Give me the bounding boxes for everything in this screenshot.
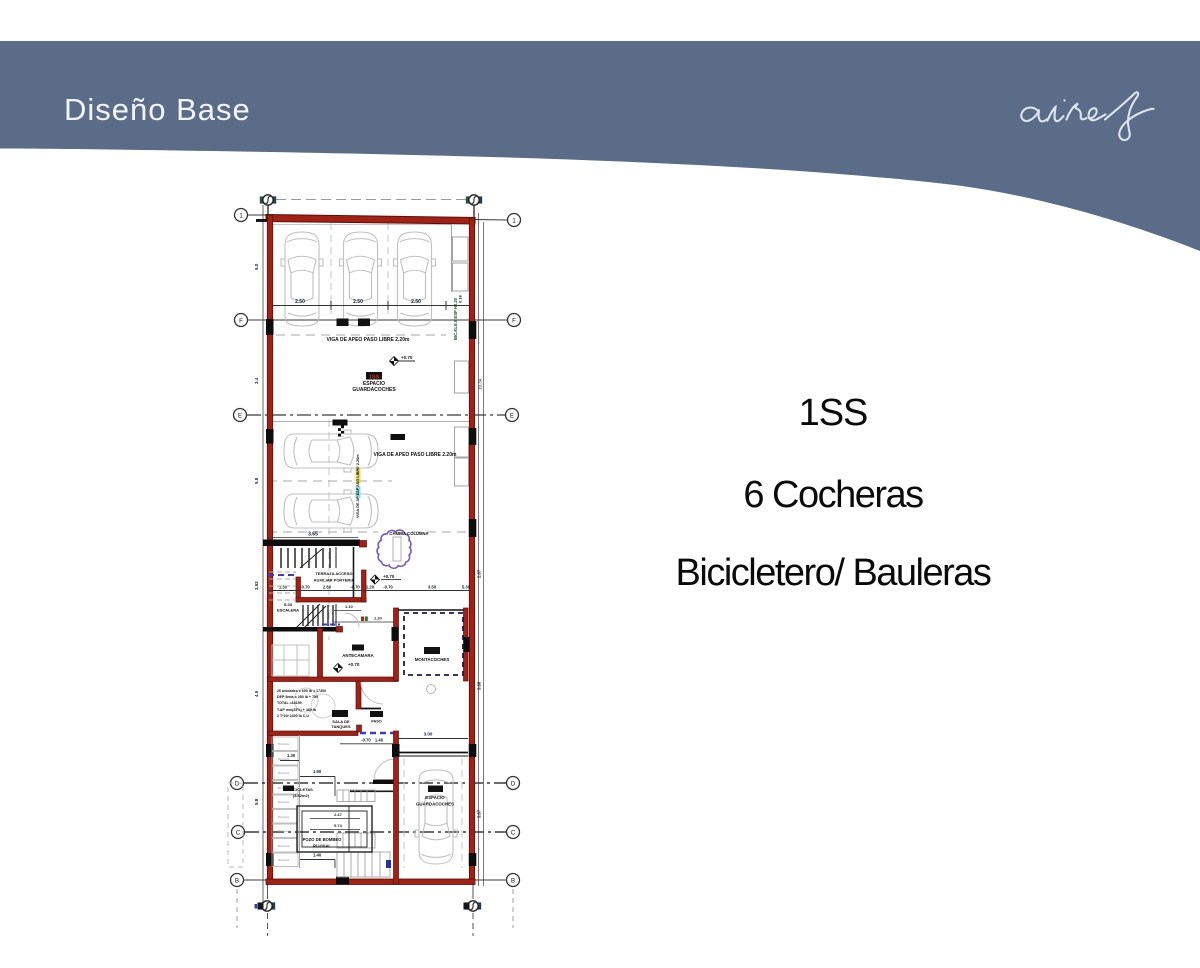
svg-text:VIGA DE APEO PASO LIBRE 2.20m: VIGA DE APEO PASO LIBRE 2.20m bbox=[374, 452, 457, 458]
svg-text:+0.70: +0.70 bbox=[383, 574, 395, 579]
svg-text:-0.70: -0.70 bbox=[361, 738, 371, 743]
svg-text:(3.52m2): (3.52m2) bbox=[293, 793, 310, 798]
svg-text:TANQUES: TANQUES bbox=[331, 724, 351, 729]
svg-text:3.52: 3.52 bbox=[254, 581, 259, 590]
svg-text:5.74: 5.74 bbox=[334, 823, 343, 828]
svg-text:B: B bbox=[235, 879, 239, 885]
svg-text:2 T*20/ 2400 lb C.U: 2 T*20/ 2400 lb C.U bbox=[277, 714, 309, 718]
svg-text:Bicicleta: Bicicleta bbox=[278, 742, 290, 746]
svg-text:1.10: 1.10 bbox=[345, 604, 354, 609]
svg-text:PASO: PASO bbox=[371, 720, 382, 724]
svg-text:BIC.KLE.5 ESP H2.20: BIC.KLE.5 ESP H2.20 bbox=[453, 297, 458, 340]
svg-text:Bicicleta: Bicicleta bbox=[278, 800, 290, 804]
svg-text:GUARDACOCHES: GUARDACOCHES bbox=[352, 387, 396, 393]
svg-text:2.50: 2.50 bbox=[353, 299, 363, 305]
svg-text:MONTACOCHES: MONTACOCHES bbox=[415, 657, 450, 662]
svg-text:Bicicleta: Bicicleta bbox=[278, 771, 290, 775]
svg-text:4.5: 4.5 bbox=[254, 690, 259, 697]
svg-text:Bicicleta: Bicicleta bbox=[278, 844, 290, 848]
svg-text:Bicicleta: Bicicleta bbox=[278, 858, 290, 862]
svg-text:E: E bbox=[238, 414, 242, 420]
svg-text:S.03: S.03 bbox=[284, 602, 293, 607]
svg-text:+0.70: +0.70 bbox=[348, 662, 360, 667]
svg-text:-0.70: -0.70 bbox=[350, 585, 360, 590]
svg-text:3.00: 3.00 bbox=[424, 732, 433, 737]
svg-text:Bicicleta: Bicicleta bbox=[278, 829, 290, 833]
svg-text:POZO DE BOMBEO: POZO DE BOMBEO bbox=[303, 837, 343, 842]
svg-text:AUXILIAR PORTERIA: AUXILIAR PORTERIA bbox=[314, 578, 355, 583]
svg-text:B: B bbox=[511, 879, 515, 885]
svg-text:3.50: 3.50 bbox=[428, 585, 437, 590]
svg-text:GUARDACOCHES: GUARDACOCHES bbox=[416, 802, 454, 807]
svg-text:VIGA DE APEO PASO LIBRE 2.20m: VIGA DE APEO PASO LIBRE 2.20m bbox=[327, 337, 410, 343]
svg-text:1.30: 1.30 bbox=[279, 585, 288, 590]
svg-text:F: F bbox=[239, 319, 243, 325]
svg-text:C: C bbox=[511, 831, 516, 837]
svg-text:VIGA DE AP ESP ASO LIBRE 2.20m: VIGA DE AP ESP ASO LIBRE 2.20m bbox=[356, 454, 360, 518]
svg-text:1.30: 1.30 bbox=[287, 753, 296, 758]
svg-text:5.8: 5.8 bbox=[254, 477, 259, 484]
svg-text:-0.70: -0.70 bbox=[383, 585, 393, 590]
svg-text:1SS: 1SS bbox=[369, 375, 380, 381]
svg-text:26 unidades x 600 lb = 17400: 26 unidades x 600 lb = 17400 bbox=[277, 689, 326, 693]
svg-text:CAMBIA COLUMNA: CAMBIA COLUMNA bbox=[389, 531, 428, 536]
svg-text:Bicicleta: Bicicleta bbox=[278, 815, 290, 819]
svg-text:3.65: 3.65 bbox=[308, 532, 318, 538]
svg-text:1.40: 1.40 bbox=[313, 853, 322, 858]
svg-text:-0.70: -0.70 bbox=[300, 585, 310, 590]
svg-text:10.34: 10.34 bbox=[478, 378, 483, 390]
svg-text:5.8: 5.8 bbox=[254, 798, 259, 805]
svg-text:2.50: 2.50 bbox=[411, 299, 421, 305]
svg-text:2.47: 2.47 bbox=[334, 812, 343, 817]
svg-text:1.20: 1.20 bbox=[366, 585, 375, 590]
svg-text:ESCALERA: ESCALERA bbox=[277, 608, 299, 613]
svg-text:2.87: 2.87 bbox=[477, 569, 482, 578]
svg-text:0.18: 0.18 bbox=[458, 294, 463, 303]
svg-text:D: D bbox=[511, 782, 516, 788]
svg-text:5.88: 5.88 bbox=[477, 681, 482, 690]
svg-text:F: F bbox=[512, 319, 516, 325]
svg-text:2.60: 2.60 bbox=[323, 585, 332, 590]
svg-text:1.40: 1.40 bbox=[375, 738, 384, 743]
svg-text:C: C bbox=[236, 831, 241, 837]
svg-text:PLUVIAL: PLUVIAL bbox=[313, 844, 331, 849]
svg-text:1.20: 1.20 bbox=[374, 616, 383, 621]
svg-text:1.90: 1.90 bbox=[313, 769, 322, 774]
svg-text:TERRAZA ACCESO: TERRAZA ACCESO bbox=[315, 571, 352, 576]
svg-text:5.30: 5.30 bbox=[462, 585, 471, 590]
svg-text:T.AP min(25%) + 480 lb: T.AP min(25%) + 480 lb bbox=[277, 708, 317, 712]
svg-text:5.0: 5.0 bbox=[254, 263, 259, 270]
svg-text:TOTAL =: TOTAL =18150 bbox=[277, 701, 302, 705]
svg-text:DEP 5mts x 280 lb + 75: DEP 5mts x 280 lb + 750 bbox=[277, 695, 318, 699]
svg-text:5.87: 5.87 bbox=[477, 809, 482, 818]
svg-text:D: D bbox=[235, 782, 240, 788]
svg-text:+0.70: +0.70 bbox=[401, 355, 413, 360]
svg-text:3.4: 3.4 bbox=[254, 377, 259, 384]
svg-text:ANTECAMARA: ANTECAMARA bbox=[342, 653, 374, 658]
svg-text:ESPACIO: ESPACIO bbox=[425, 795, 445, 800]
svg-text:2.50: 2.50 bbox=[295, 299, 305, 305]
svg-text:BICICLETAS: BICICLETAS bbox=[289, 787, 313, 792]
svg-text:E: E bbox=[510, 414, 514, 420]
